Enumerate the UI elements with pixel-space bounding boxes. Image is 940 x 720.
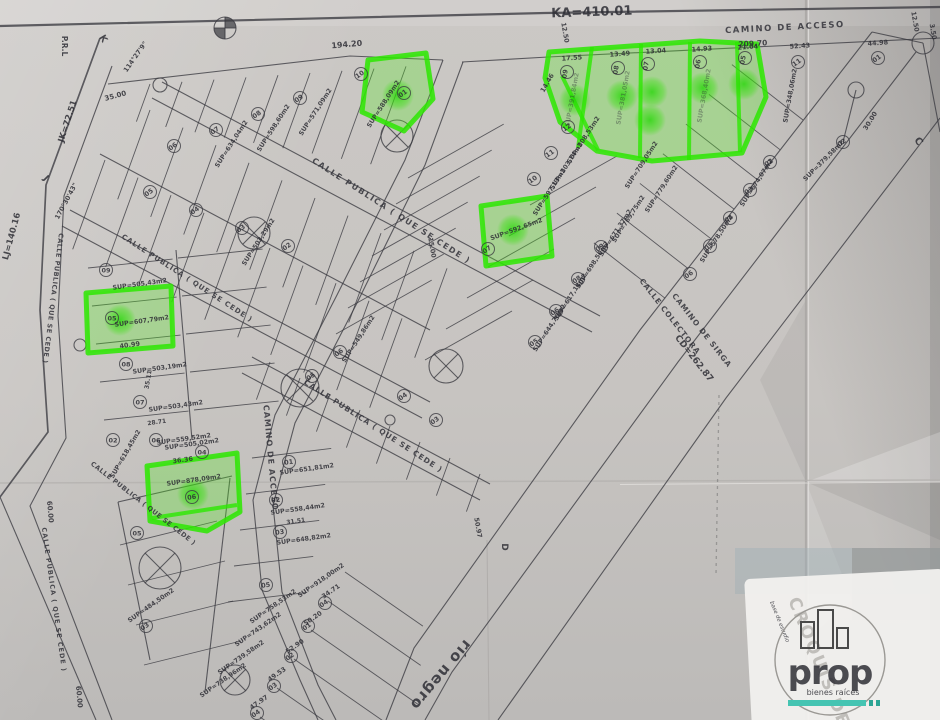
hatch-line — [106, 178, 138, 267]
lot-area-label: SUP=598,60m2 — [256, 103, 292, 153]
survey-node — [153, 78, 167, 92]
lot-number: 05 — [132, 529, 142, 537]
highlight-marker-blob — [634, 104, 666, 136]
survey-point-label: C — [911, 135, 924, 147]
lot-number: 05 — [738, 54, 748, 65]
street-label: CALLE PUBLICA ( QUE SE CEDE ) — [310, 156, 472, 266]
survey-point-label: D — [499, 543, 509, 550]
lot-marker: 01SUP=651,81m2 — [279, 456, 334, 477]
hatch-line — [382, 251, 414, 340]
survey-point-label: P.R.L — [60, 36, 69, 57]
lot-marker: 05 — [131, 527, 144, 540]
fold-shading — [806, 482, 940, 540]
lot-marker: 04SUP=578,50m2 — [699, 212, 737, 265]
croquis-svg: CAMINO DE ACCESOCAMINO DE ACCESOCALLE PU… — [0, 0, 940, 720]
dimension-label: 14.93 — [691, 44, 712, 53]
dimension-label: 21.04 — [737, 42, 759, 51]
hatch-line — [425, 311, 512, 360]
lot-marker: 03 — [429, 414, 443, 427]
lot-marker: 04SUP=738,96m2 — [199, 662, 264, 719]
dimension-label: 194.20 — [331, 39, 363, 51]
hatch-line — [311, 630, 418, 705]
lot-marker: 02 — [281, 240, 295, 253]
lot-number: 08 — [611, 64, 621, 75]
hatch-line — [446, 280, 533, 329]
horizontal-fold-crease — [0, 480, 940, 483]
lot-number: 08 — [121, 360, 131, 368]
lot-marker: 05 — [305, 370, 319, 383]
logo-wordmark: prop — [788, 653, 873, 693]
hatch-line — [195, 80, 214, 133]
lot-marker: 04 — [397, 390, 411, 403]
benchmark-symbol-prl — [214, 17, 236, 39]
hatch-line — [304, 283, 336, 372]
lot-marker: 06SUP=549,86m2 — [333, 314, 377, 364]
west-boundary-line — [0, 38, 100, 497]
lot-number: 04 — [197, 448, 207, 456]
dimension-label: 13.49 — [609, 49, 631, 58]
lot-marker: 04 — [189, 204, 203, 217]
hatch-line — [190, 363, 275, 372]
lot-area-label: SUP=578,50m2 — [699, 214, 735, 264]
lot-number: 07 — [641, 61, 650, 71]
dimension-label: 13.04 — [645, 46, 667, 55]
lot-area-label: SUP=634,04m2 — [214, 119, 250, 169]
hatch-line — [663, 154, 734, 209]
hatch-line — [118, 110, 150, 199]
hatch-line — [256, 362, 270, 400]
hatch-line — [217, 163, 249, 252]
lot-area-label: SUP=674,07m2 — [739, 158, 775, 208]
highlight-divider — [689, 42, 690, 160]
highlight-marker-blob — [636, 76, 668, 108]
dimension-label: 28.71 — [147, 418, 167, 428]
fold-shading — [806, 432, 940, 482]
hatch-line — [234, 556, 313, 566]
lot-division-lines — [73, 65, 803, 720]
lot-marker: 11SUP=503,74m2 — [544, 141, 585, 191]
dimension-label: 47.97 — [248, 693, 269, 711]
logo-teal-dot — [876, 700, 880, 706]
lot-marker: 02SUP=674,07m2 — [739, 156, 777, 209]
hatch-line — [316, 216, 348, 305]
hatch-line — [73, 160, 105, 249]
lot-area-label: SUP=484,50m2 — [127, 587, 176, 624]
lot-number: 01 — [284, 458, 295, 467]
survey-node — [74, 339, 86, 351]
lot-number: 07 — [135, 398, 144, 406]
lot-marker: 03SUP=484,50m2 — [127, 587, 176, 632]
lot-marker: 11SUP=348,06m2 — [782, 56, 804, 124]
hatch-line — [277, 688, 414, 720]
lot-number: 02 — [271, 496, 281, 505]
hatch-line — [246, 484, 325, 494]
dimension-label: 35.00 — [104, 89, 128, 102]
hatch-line — [466, 474, 480, 512]
fold-shading — [760, 300, 806, 482]
lot-marker: 03SUP=648,82m2 — [274, 526, 332, 547]
lot-number: 06 — [187, 493, 198, 502]
lot-number: 09 — [560, 68, 570, 79]
hatch-line — [286, 378, 300, 416]
dimension-label: LJ=140.16 — [1, 212, 23, 262]
lot-marker: 06 — [683, 268, 697, 281]
survey-node — [385, 415, 395, 425]
logo-card-area: CROQUIS DE RE base de estudio prop biene… — [735, 548, 940, 720]
hatch-line — [139, 195, 171, 284]
lot-area-label: SUP=549,86m2 — [341, 314, 377, 364]
dimension-label: 44.98 — [867, 38, 889, 47]
dimension-label: 60.00 — [45, 500, 55, 523]
lot-number: 02 — [108, 436, 117, 444]
lot-number: 03 — [275, 528, 285, 537]
dimension-label: 170°30'43" — [53, 181, 79, 220]
map-photo: CAMINO DE ACCESOCAMINO DE ACCESOCALLE PU… — [0, 0, 940, 720]
rotonda-symbol — [429, 349, 463, 383]
west-street-inner-edge — [30, 66, 112, 720]
dimension-label: 31.51 — [286, 517, 306, 527]
logo-tagline: bienes raíces — [807, 688, 860, 697]
street-label: CALLE PUBLICA ( QUE SE CEDE ) — [41, 233, 65, 364]
river-label: río negro — [406, 636, 475, 714]
hatch-line — [271, 266, 303, 355]
dimension-label: 60.00 — [74, 685, 84, 708]
lot-marker: 05 — [143, 186, 157, 199]
access-road-join — [462, 57, 548, 62]
lot-marker: 05 — [260, 579, 273, 592]
lot-marker: 07SUP=503,43m2 — [134, 396, 204, 414]
lot-marker: 01 — [871, 52, 885, 65]
lot-area-label: SUP=503,43m2 — [148, 399, 203, 414]
dimension-label: KA=410.01 — [551, 4, 633, 22]
lot-marker: 02SUP=379,58m2 — [802, 136, 849, 183]
dimension-label: 34.71 — [320, 582, 342, 601]
hatch-line — [345, 572, 423, 626]
logo-teal-bar — [788, 700, 866, 706]
lot-marker: 02SUP=618,45m2 — [107, 429, 143, 480]
logo-teal-dot — [869, 700, 873, 706]
lot-marker: 07SUP=634,04m2 — [209, 119, 250, 169]
lot-area-label: SUP=571,09m2 — [298, 87, 334, 137]
hatch-line — [186, 325, 271, 334]
lot-area-label: SUP=779,60m2 — [644, 164, 680, 214]
hatch-line — [415, 268, 447, 357]
lot-marker: 08SUP=598,60m2 — [251, 103, 292, 153]
hatch-line — [349, 233, 381, 322]
dimension-label: 17.55 — [561, 53, 583, 62]
dimension-label: JK=72.51 — [56, 99, 79, 145]
hatch-line — [370, 318, 402, 407]
lot-number: 05 — [261, 581, 272, 590]
worn-fold-line — [716, 395, 719, 575]
lot-number: 09 — [101, 266, 111, 274]
dimension-label: 50.97 — [472, 517, 483, 539]
hatch-line — [144, 641, 241, 665]
dimension-label: 30.00 — [861, 110, 879, 132]
lot-number: 06 — [693, 58, 703, 69]
hatch-line — [104, 411, 189, 420]
lot-marker: 06 — [167, 140, 181, 153]
faint-fold-line — [487, 540, 489, 720]
dimension-label: 114°27'9" — [122, 40, 149, 74]
hatch-line — [328, 601, 421, 665]
rotonda-symbol — [139, 547, 181, 589]
hatch-line — [184, 145, 216, 234]
highlight-marker-blob — [728, 68, 760, 100]
lot-marker: 03SUP=739,58m2 — [217, 639, 281, 692]
lot-marker: 08SUP=503,19m2 — [120, 358, 188, 376]
dimension-label: 52.43 — [789, 41, 810, 50]
